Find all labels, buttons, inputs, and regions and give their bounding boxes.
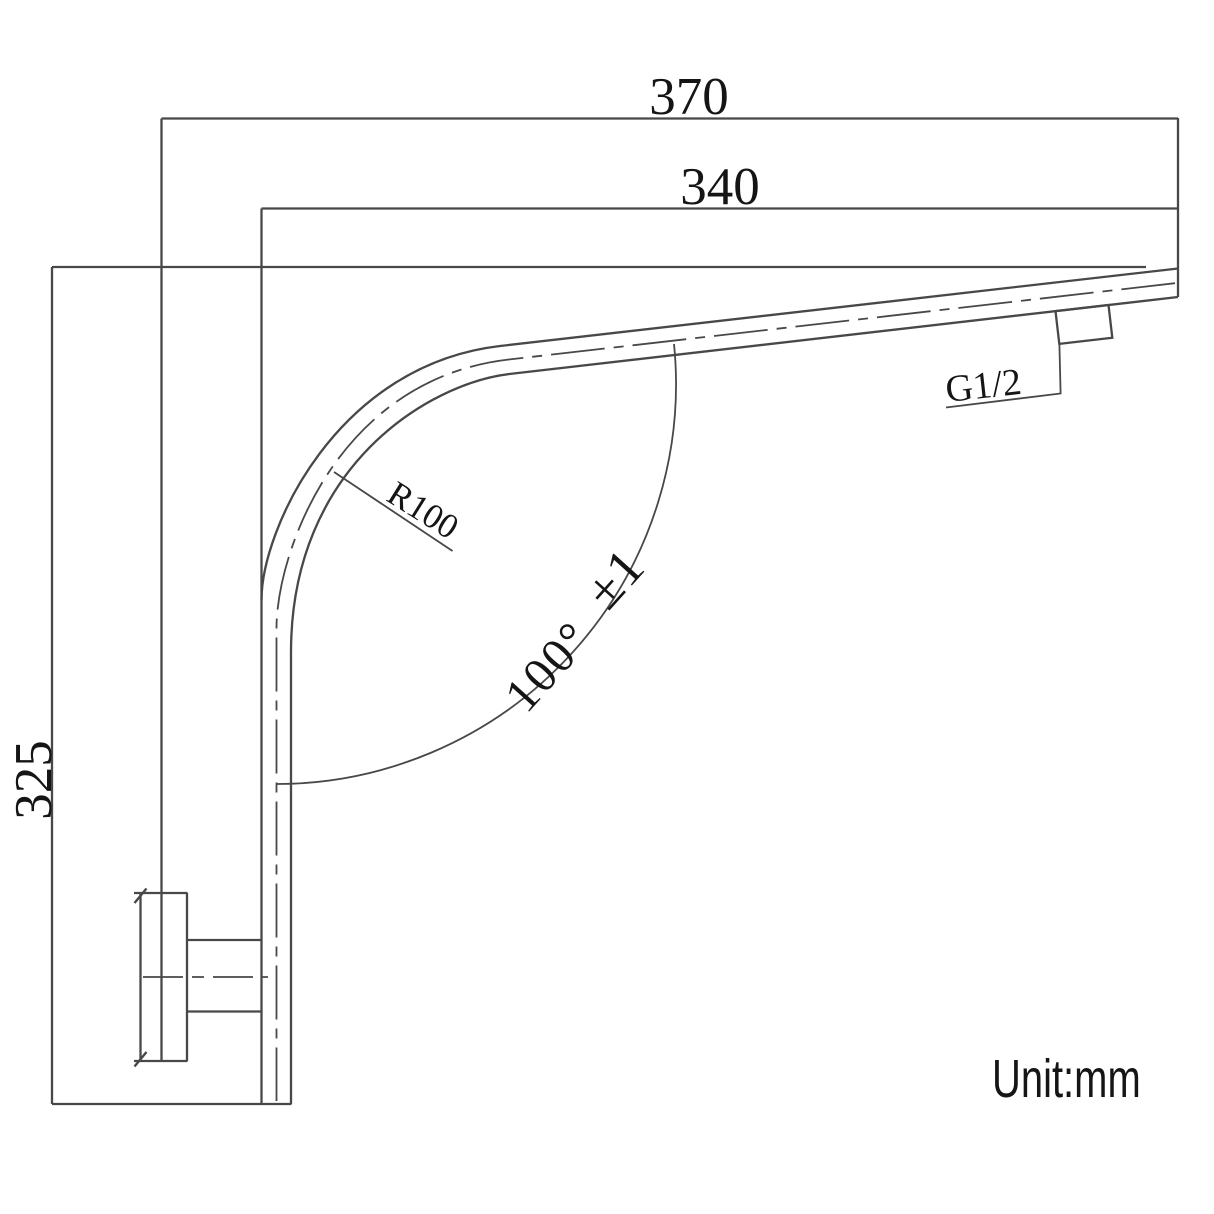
svg-text:Unit:mm: Unit:mm	[992, 1049, 1141, 1109]
svg-text:R100: R100	[381, 474, 466, 547]
svg-text:G1/2: G1/2	[943, 361, 1023, 411]
svg-text:370: 370	[649, 68, 729, 126]
svg-text:340: 340	[680, 158, 760, 216]
svg-text:325: 325	[5, 740, 63, 820]
svg-text:100°±1: 100°±1	[486, 537, 662, 722]
